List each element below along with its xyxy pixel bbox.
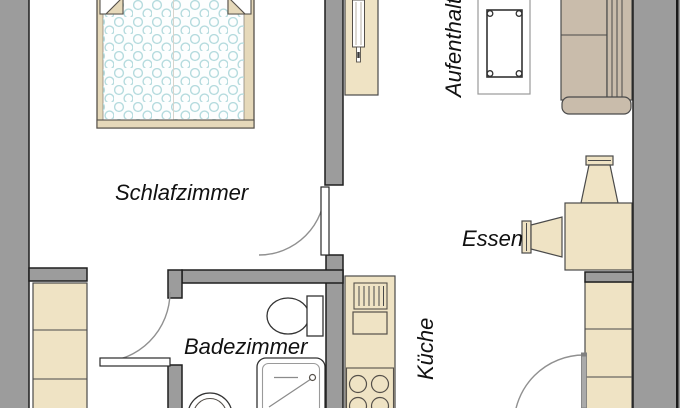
- sofa-armrest: [562, 97, 631, 114]
- room-label-aufenthalt: Aufenthalt: [441, 0, 466, 99]
- wall-bedroom-bottom: [29, 268, 87, 281]
- dining-chair-left: [522, 217, 562, 257]
- kitchen-counter: [345, 276, 395, 408]
- room-label-badezimmer: Badezimmer: [184, 334, 309, 359]
- coffee-table: [487, 10, 522, 77]
- floor-plan: Schlafzimmer Aufenthalt Badezimmer Küche…: [0, 0, 680, 408]
- wall-bathroom-top: [182, 270, 343, 283]
- floor-plan-drawing: Schlafzimmer Aufenthalt Badezimmer Küche…: [0, 0, 680, 408]
- toilet: [267, 296, 323, 336]
- dining-table: [565, 203, 632, 270]
- wall-right-edge: [676, 0, 679, 408]
- double-bed: [97, 0, 254, 128]
- dining-chair-top: [581, 156, 618, 203]
- sofa: [561, 0, 632, 114]
- room-label-kueche: Küche: [413, 318, 438, 380]
- wall-bedroom-divider: [325, 0, 343, 185]
- wall-bathroom-left: [168, 365, 182, 408]
- pillow: [228, 0, 251, 14]
- shower: [257, 358, 325, 408]
- wall-right: [633, 0, 680, 408]
- tall-cabinet: [585, 282, 632, 408]
- wall-left: [0, 0, 29, 408]
- wall-dining-stub: [585, 272, 633, 282]
- room-label-schlafzimmer: Schlafzimmer: [115, 180, 250, 205]
- wardrobe: [33, 283, 87, 408]
- pillow: [100, 0, 123, 14]
- tv-sideboard: [345, 0, 378, 95]
- room-label-essen: Essen: [462, 226, 523, 251]
